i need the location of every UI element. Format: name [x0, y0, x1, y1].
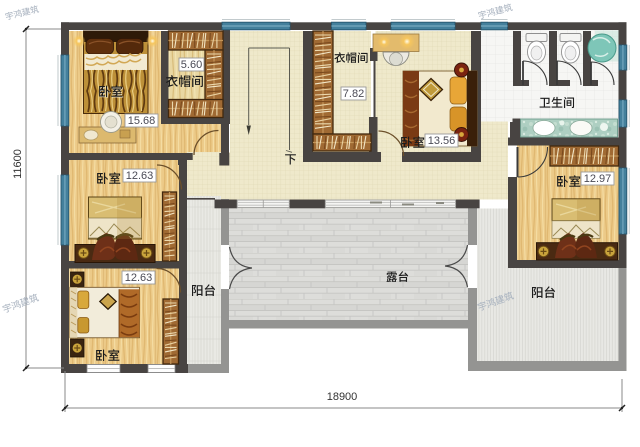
svg-text:13.56: 13.56: [428, 135, 456, 147]
svg-text:18900: 18900: [327, 391, 358, 403]
svg-text:12.97: 12.97: [584, 173, 612, 185]
svg-text:7.82: 7.82: [343, 88, 364, 100]
svg-text:12.63: 12.63: [126, 170, 154, 182]
svg-text:5.60: 5.60: [181, 59, 202, 71]
svg-text:11600: 11600: [12, 149, 24, 179]
svg-text:15.68: 15.68: [128, 115, 156, 127]
svg-text:12.63: 12.63: [125, 272, 153, 284]
